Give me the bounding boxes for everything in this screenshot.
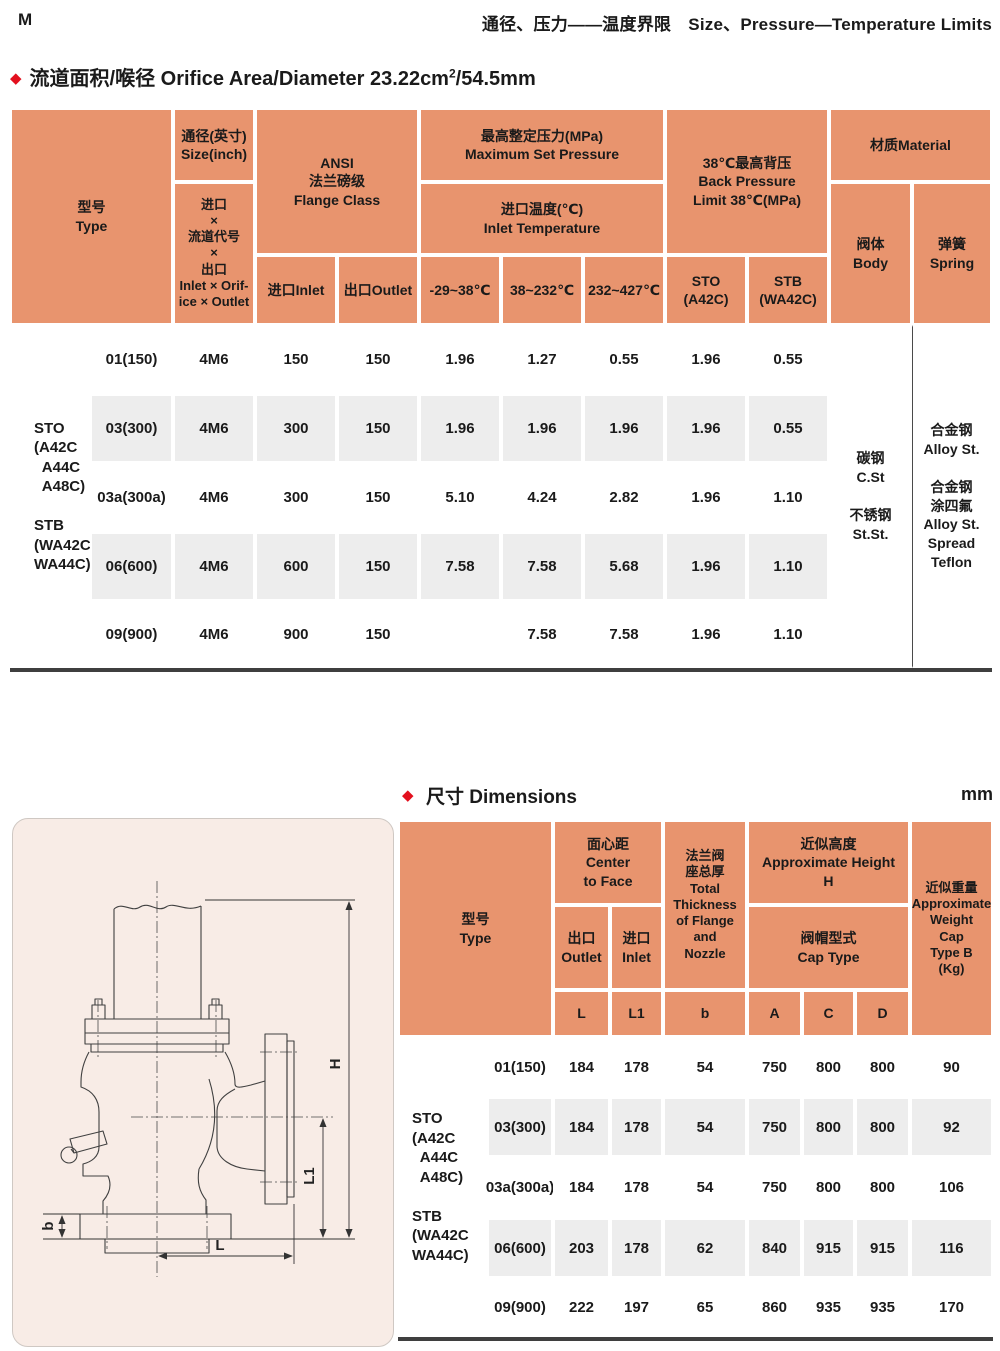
th-material: 材质Material	[829, 108, 992, 182]
t1-r3-outlet: 150	[337, 532, 419, 601]
page-header-title: 通径、压力——温度界限 Size、Pressure—Temperature Li…	[482, 10, 992, 35]
t2-r0-W: 90	[910, 1037, 993, 1097]
dimensions-table: 型号 Type 面心距 Center to Face 出口 Outlet 进口 …	[398, 820, 993, 1337]
t1-r0-type: 01(150)	[90, 325, 173, 394]
th-type: 型号 Type	[10, 108, 173, 325]
dimensions-section-title: 尺寸 Dimensions	[426, 782, 577, 809]
dimensions-unit: mm	[961, 784, 993, 805]
th2-inlet: 进口 Inlet	[610, 905, 663, 990]
th-max-set-pressure: 最高整定压力(MPa) Maximum Set Pressure	[419, 108, 665, 182]
th2-center-to-face: 面心距 Center to Face	[553, 820, 663, 905]
table1-bottom-rule	[10, 668, 992, 672]
t2-r4-b: 65	[663, 1278, 747, 1337]
t1-r4-size: 4M6	[173, 601, 255, 668]
th2-approx-height: 近似高度 Approximate Height H	[747, 820, 910, 905]
t2-r3-b: 62	[663, 1218, 747, 1278]
t2-r0-C: 800	[802, 1037, 855, 1097]
t1-r0-stb: 0.55	[747, 325, 829, 394]
t1-r4-t1	[419, 601, 501, 668]
t1-r3-t1: 7.58	[419, 532, 501, 601]
t2-r2-A: 750	[747, 1157, 802, 1218]
pressure-temperature-table: 型号 Type 通径(英寸) Size(inch) 进口 × 流道代号 × 出口…	[10, 108, 992, 668]
orifice-title-suffix: /54.5mm	[456, 68, 536, 90]
t2-r2-b: 54	[663, 1157, 747, 1218]
t2-r3-L: 203	[553, 1218, 610, 1278]
th2-A: A	[747, 990, 802, 1037]
th-stb: STB (WA42C)	[747, 255, 829, 325]
dim-label-l1: L1	[301, 1167, 318, 1185]
t2-r4-type: 09(900)	[487, 1278, 553, 1337]
t1-r1-t2: 1.96	[501, 394, 583, 463]
t1-r3-t3: 5.68	[583, 532, 665, 601]
t2-r0-L: 184	[553, 1037, 610, 1097]
t2-r2-C: 800	[802, 1157, 855, 1218]
t1-r0-inlet: 150	[255, 325, 337, 394]
th2-outlet: 出口 Outlet	[553, 905, 610, 990]
t1-body-material: 碳钢 C.St 不锈钢 St.St.	[829, 325, 912, 668]
orifice-title-sup: 2	[449, 66, 456, 80]
t1-r2-inlet: 300	[255, 463, 337, 532]
th-inlet-orifice-outlet: 进口 × 流道代号 × 出口 Inlet × Orif- ice × Outle…	[173, 182, 255, 325]
t1-r3-sto: 1.96	[665, 532, 747, 601]
th-spring: 弹簧 Spring	[912, 182, 992, 325]
t1-r1-outlet: 150	[337, 394, 419, 463]
t2-r1-L1: 178	[610, 1097, 663, 1157]
t1-r4-type: 09(900)	[90, 601, 173, 668]
table2-bottom-rule	[398, 1337, 993, 1341]
t1-r2-size: 4M6	[173, 463, 255, 532]
dim-label-b: b	[40, 1221, 57, 1230]
t1-r4-inlet: 900	[255, 601, 337, 668]
t1-r1-t1: 1.96	[419, 394, 501, 463]
t1-r3-inlet: 600	[255, 532, 337, 601]
t1-r2-type: 03a(300a)	[90, 463, 173, 532]
dim-label-h: H	[327, 1059, 344, 1070]
t2-r2-W: 106	[910, 1157, 993, 1218]
t1-series-label: STO (A42C A44C A48C) STB (WA42C WA44C)	[10, 325, 90, 668]
t1-r4-t2: 7.58	[501, 601, 583, 668]
t1-r2-stb: 1.10	[747, 463, 829, 532]
t2-r3-D: 915	[855, 1218, 910, 1278]
th2-D: D	[855, 990, 910, 1037]
t1-r2-t3: 2.82	[583, 463, 665, 532]
t2-r1-b: 54	[663, 1097, 747, 1157]
th-body: 阀体 Body	[829, 182, 912, 325]
t1-r0-t1: 1.96	[419, 325, 501, 394]
th2-thickness: 法兰阀 座总厚 Total Thickness of Flange and No…	[663, 820, 747, 990]
t2-r3-W: 116	[910, 1218, 993, 1278]
th2-type: 型号 Type	[398, 820, 553, 1037]
t2-r2-type: 03a(300a)	[487, 1157, 553, 1218]
th2-L1: L1	[610, 990, 663, 1037]
catalog-page: M 通径、压力——温度界限 Size、Pressure—Temperature …	[0, 0, 1000, 1351]
t1-r0-sto: 1.96	[665, 325, 747, 394]
th-inlet-temperature: 进口温度(℃) Inlet Temperature	[419, 182, 665, 255]
th-flange-outlet: 出口Outlet	[337, 255, 419, 325]
t2-r1-type: 03(300)	[487, 1097, 553, 1157]
t1-r2-outlet: 150	[337, 463, 419, 532]
th2-weight: 近似重量 Approximate Weight Cap Type B (Kg)	[910, 820, 993, 1037]
t1-r0-t3: 0.55	[583, 325, 665, 394]
t1-r0-size: 4M6	[173, 325, 255, 394]
t2-r1-D: 800	[855, 1097, 910, 1157]
diamond-bullet-icon: ◆	[402, 786, 414, 804]
t1-r1-inlet: 300	[255, 394, 337, 463]
valve-drawing: H L1 b L	[13, 819, 393, 1346]
t2-r1-W: 92	[910, 1097, 993, 1157]
th-temp-range-3: 232~427℃	[583, 255, 665, 325]
t1-r4-outlet: 150	[337, 601, 419, 668]
t1-r4-stb: 1.10	[747, 601, 829, 668]
t2-r1-A: 750	[747, 1097, 802, 1157]
th-back-pressure: 38℃最高背压 Back Pressure Limit 38℃(MPa)	[665, 108, 829, 255]
dim-label-l: L	[215, 1237, 224, 1254]
t1-r3-t2: 7.58	[501, 532, 583, 601]
t1-r0-outlet: 150	[337, 325, 419, 394]
th-temp-range-1: -29~38℃	[419, 255, 501, 325]
orifice-section-title: ◆流道面积/喉径 Orifice Area/Diameter 23.22cm2/…	[10, 62, 536, 91]
t2-r3-type: 06(600)	[487, 1218, 553, 1278]
th2-L: L	[553, 990, 610, 1037]
th-size-inch: 通径(英寸) Size(inch)	[173, 108, 255, 182]
t1-r1-type: 03(300)	[90, 394, 173, 463]
t2-r0-D: 800	[855, 1037, 910, 1097]
t2-r2-D: 800	[855, 1157, 910, 1218]
orifice-title-text: 流道面积/喉径 Orifice Area/Diameter 23.22cm	[30, 68, 449, 90]
t2-r3-L1: 178	[610, 1218, 663, 1278]
t2-r4-A: 860	[747, 1278, 802, 1337]
t1-r2-t2: 4.24	[501, 463, 583, 532]
th-ansi-flange-class: ANSI 法兰磅级 Flange Class	[255, 108, 419, 255]
th-sto: STO (A42C)	[665, 255, 747, 325]
th2-cap-type: 阀帽型式 Cap Type	[747, 905, 910, 990]
t1-r1-sto: 1.96	[665, 394, 747, 463]
th-flange-inlet: 进口Inlet	[255, 255, 337, 325]
th2-C: C	[802, 990, 855, 1037]
t1-r3-stb: 1.10	[747, 532, 829, 601]
t1-r1-size: 4M6	[173, 394, 255, 463]
th2-b: b	[663, 990, 747, 1037]
t2-r4-C: 935	[802, 1278, 855, 1337]
t1-r4-t3: 7.58	[583, 601, 665, 668]
t1-r3-size: 4M6	[173, 532, 255, 601]
t2-r4-W: 170	[910, 1278, 993, 1337]
t1-spring-material: 合金钢 Alloy St. 合金钢 涂四氟 Alloy St. Spread T…	[912, 325, 992, 668]
t2-r1-C: 800	[802, 1097, 855, 1157]
t2-r2-L: 184	[553, 1157, 610, 1218]
t1-r1-stb: 0.55	[747, 394, 829, 463]
th-temp-range-2: 38~232℃	[501, 255, 583, 325]
t2-r0-b: 54	[663, 1037, 747, 1097]
t2-r2-L1: 178	[610, 1157, 663, 1218]
t2-series-label: STO (A42C A44C A48C) STB (WA42C WA44C)	[398, 1037, 487, 1337]
valve-drawing-panel: H L1 b L	[12, 818, 394, 1347]
t2-r4-L: 222	[553, 1278, 610, 1337]
t2-r0-type: 01(150)	[487, 1037, 553, 1097]
t2-r3-C: 915	[802, 1218, 855, 1278]
t2-r1-L: 184	[553, 1097, 610, 1157]
diamond-bullet-icon: ◆	[10, 70, 22, 87]
page-corner-mark: M	[18, 10, 32, 30]
t2-r4-D: 935	[855, 1278, 910, 1337]
t2-r0-A: 750	[747, 1037, 802, 1097]
t1-r2-t1: 5.10	[419, 463, 501, 532]
t1-r0-t2: 1.27	[501, 325, 583, 394]
t1-r2-sto: 1.96	[665, 463, 747, 532]
t2-r3-A: 840	[747, 1218, 802, 1278]
t1-r1-t3: 1.96	[583, 394, 665, 463]
t2-r4-L1: 197	[610, 1278, 663, 1337]
t1-r3-type: 06(600)	[90, 532, 173, 601]
t2-r0-L1: 178	[610, 1037, 663, 1097]
t1-r4-sto: 1.96	[665, 601, 747, 668]
